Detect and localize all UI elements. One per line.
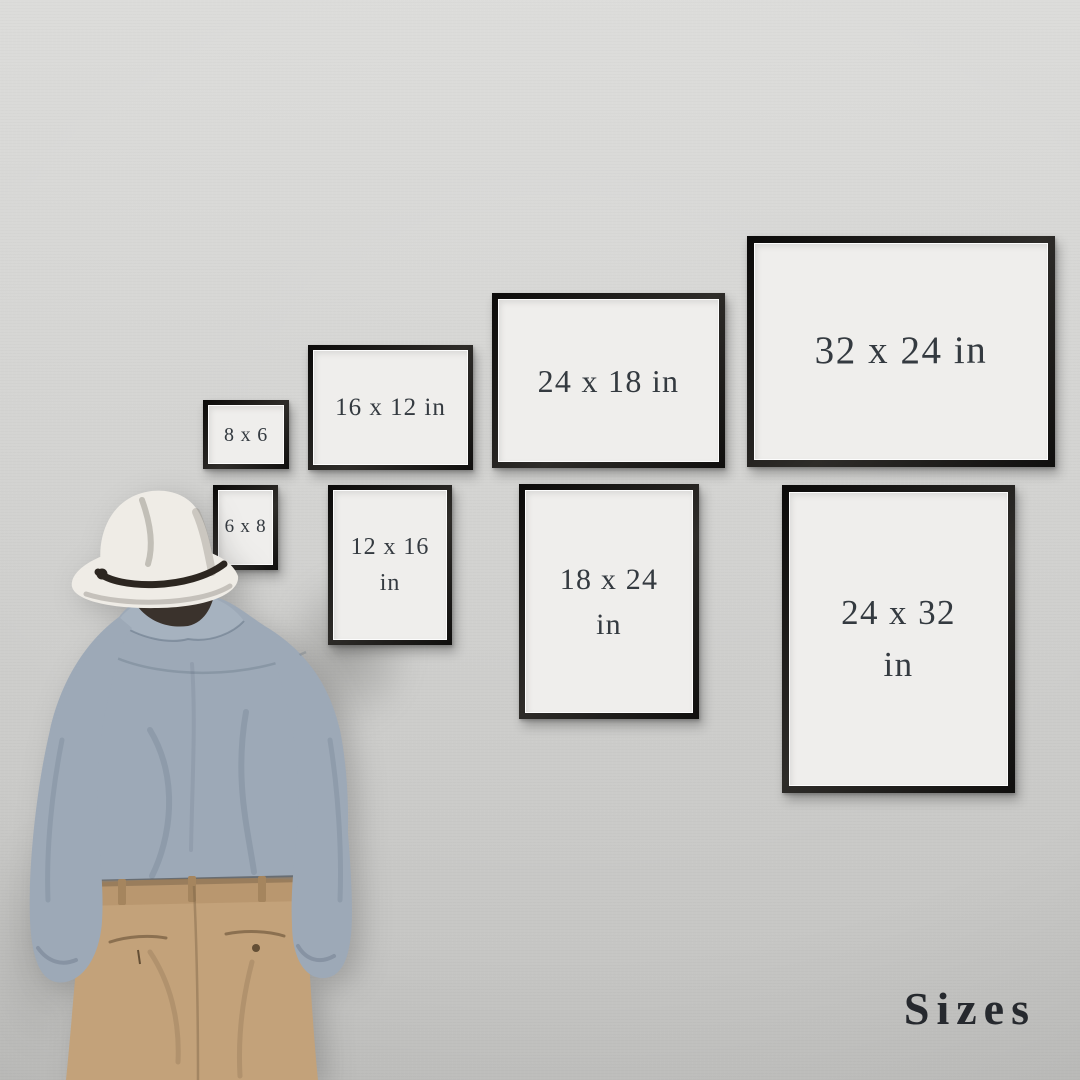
frame-mat: 16 x 12 in [313,350,468,465]
frame-18x24: 18 x 24 in [519,484,699,719]
belt-loop [258,876,266,902]
frame-24x18: 24 x 18 in [492,293,725,468]
size-label: 18 x 24 in [558,557,660,647]
pants [66,878,318,1080]
frame-32x24: 32 x 24 in [747,236,1055,467]
frame-mat: 24 x 32 in [789,492,1008,786]
frame-24x32: 24 x 32 in [782,485,1015,793]
size-label: 24 x 18 in [538,357,680,405]
shirt-crease [191,664,194,850]
frame-8x6: 8 x 6 [203,400,289,469]
hat-band-knot [97,569,108,580]
frame-mat: 8 x 6 [208,405,284,464]
size-label: 24 x 32 in [839,587,958,692]
pocket-button [252,944,260,952]
sizes-watermark: Sizes [904,982,1036,1035]
person-figure [0,480,400,1080]
wall: 8 x 6 16 x 12 in 24 x 18 in 32 x 24 in 6… [0,0,1080,1080]
frame-mat: 24 x 18 in [498,299,719,462]
size-label: 8 x 6 [224,420,268,450]
frame-mat: 32 x 24 in [754,243,1048,460]
frame-16x12: 16 x 12 in [308,345,473,470]
size-label: 32 x 24 in [815,322,988,381]
belt-loop [118,879,126,905]
frame-mat: 18 x 24 in [525,490,693,713]
size-label: 16 x 12 in [335,389,446,427]
